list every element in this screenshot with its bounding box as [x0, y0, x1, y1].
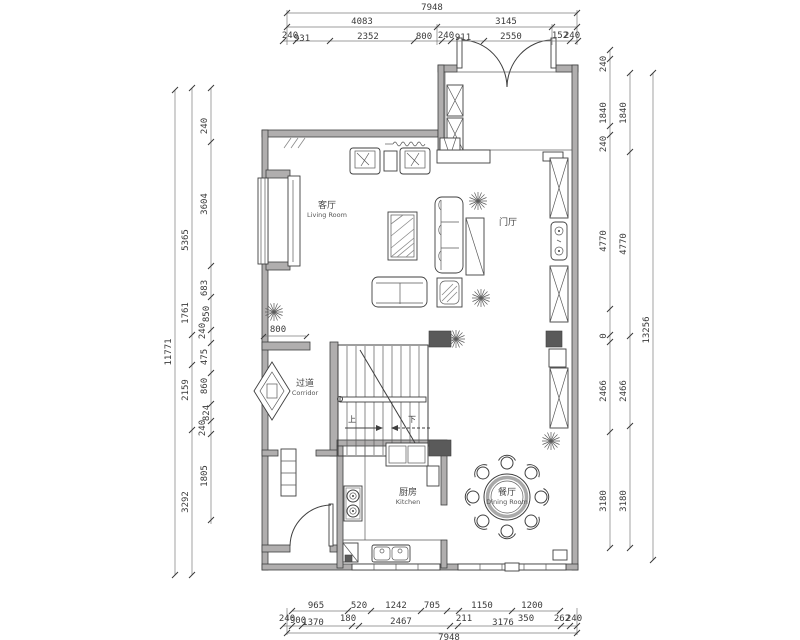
- dim-label: 7948: [421, 3, 443, 13]
- dim-label: 2352: [357, 32, 379, 42]
- dim-label: 1242: [385, 601, 407, 611]
- dim-label: 2467: [390, 617, 412, 627]
- kitchen-door: [290, 504, 333, 546]
- outlet-box: [553, 550, 567, 560]
- dim-label: 3180: [599, 490, 609, 512]
- dim-label: 211: [456, 614, 472, 624]
- dim-label: 5365: [181, 229, 191, 251]
- dim-label: 240: [599, 136, 609, 152]
- dim-label: 240: [599, 56, 609, 72]
- dimensions-left: 11771 5365 1761 2159 3292 240 3604 683 8…: [164, 85, 214, 578]
- dim-label: 350: [518, 614, 534, 624]
- corner-table: [437, 278, 462, 307]
- dim-label: 850: [202, 306, 212, 322]
- living-room-label-en: Living Room: [307, 211, 347, 219]
- kitchen-label-en: Kitchen: [396, 498, 420, 506]
- plant-icon: [472, 289, 490, 307]
- kitchen-fixtures: [343, 443, 567, 562]
- curtain-icon: [393, 142, 425, 146]
- armchair: [350, 148, 380, 174]
- dimensions-bottom: 965 520 1242 705 1150 1200 240 900 1370 …: [279, 601, 582, 640]
- stove: [344, 486, 362, 521]
- dim-label: 4083: [351, 17, 373, 27]
- dim-label: 180: [340, 614, 356, 624]
- corridor-label-zh: 过道: [296, 377, 314, 389]
- dim-label: 240: [200, 118, 210, 134]
- stair-up-label: 上: [348, 415, 356, 424]
- dim-label: 2550: [500, 32, 522, 42]
- dim-label: 800: [270, 325, 286, 335]
- dim-label: 11771: [164, 338, 174, 365]
- dim-label: 1370: [302, 618, 324, 628]
- wardrobe-cabinet: [550, 266, 568, 322]
- dim-label: 1840: [599, 102, 609, 124]
- dim-label: 800: [416, 32, 432, 42]
- living-furniture: [350, 138, 490, 307]
- dining-label-zh: 餐厅: [498, 486, 516, 498]
- dim-label: 3292: [181, 491, 191, 513]
- sofa-two-seat: [372, 277, 427, 307]
- tv-wall-unit: [288, 176, 300, 266]
- dim-label: 824: [202, 405, 212, 421]
- exterior-walls: [262, 65, 578, 570]
- dimensions-top: 7948 4083 3145 240 931 2352 800 240 911 …: [280, 3, 581, 45]
- foyer-label-zh: 门厅: [499, 216, 517, 228]
- stair-up-arrow: 上: [345, 415, 383, 431]
- dim-label: 3604: [200, 193, 210, 215]
- dim-label: 931: [294, 34, 310, 44]
- dim-label: 475: [200, 349, 210, 365]
- dim-label: 7948: [438, 633, 460, 640]
- dim-label: 1761: [181, 302, 191, 324]
- dim-label: 240: [566, 614, 582, 624]
- floor-plan-canvas: 800 上 下: [0, 0, 800, 640]
- dim-label: 2466: [599, 380, 609, 402]
- corridor-art-diamond: [254, 362, 290, 420]
- dim-label: 3180: [619, 490, 629, 512]
- right-wall-cabinets: [549, 158, 568, 428]
- stairs: 上 下: [338, 345, 431, 456]
- sink: [372, 545, 410, 562]
- dim-label: 240: [564, 31, 580, 41]
- plant-icon: [469, 192, 487, 210]
- side-screen: [466, 218, 484, 275]
- dim-label: 0: [599, 333, 609, 338]
- coffee-table: [388, 212, 417, 260]
- dim-label: 1150: [471, 601, 493, 611]
- entry-porch: [445, 72, 572, 150]
- plant-icon: [265, 303, 283, 321]
- wall-hatch-marks: [284, 138, 305, 148]
- dimensions-right: 240 1840 240 4770 0 2466 3180 1840 4770 …: [599, 47, 656, 563]
- kitchen-label-zh: 厨房: [399, 486, 417, 498]
- dim-label: 520: [351, 601, 367, 611]
- dim-label: 911: [455, 33, 471, 43]
- dim-label: 1200: [521, 601, 543, 611]
- tv-cabinet: [437, 138, 490, 163]
- wardrobe-cabinet: [550, 368, 568, 428]
- left-lower-window: [281, 449, 296, 496]
- small-cabinet: [549, 349, 566, 367]
- dim-label: 3145: [495, 17, 517, 27]
- dim-label: 4770: [599, 230, 609, 252]
- wardrobe-cabinet: [550, 158, 568, 218]
- dim-label: 2466: [619, 380, 629, 402]
- corner-cabinet: [343, 543, 358, 562]
- sofa-three-seat: [435, 197, 463, 273]
- bay-window: [258, 178, 268, 264]
- dim-label: 13256: [642, 316, 652, 343]
- armchair: [400, 148, 430, 174]
- stair-down-arrow: 下: [391, 415, 430, 431]
- plant-icon: [542, 432, 560, 450]
- stair-down-label: 下: [408, 415, 416, 424]
- corridor-label-en: Corridor: [292, 389, 319, 397]
- side-table: [384, 151, 397, 171]
- dining-window: [458, 563, 566, 571]
- dim-label: 705: [424, 601, 440, 611]
- living-room-label-zh: 客厅: [318, 199, 336, 211]
- dim-label: 3176: [492, 618, 514, 628]
- plant-icon: [447, 330, 465, 348]
- dim-label: 240: [198, 323, 208, 339]
- dim-label: 1840: [619, 102, 629, 124]
- entrance-double-door: [457, 38, 556, 87]
- dining-label-en: Dining Room: [486, 498, 528, 506]
- dim-label: 240: [438, 31, 454, 41]
- dim-label: 860: [200, 378, 210, 394]
- dim-label: 965: [308, 601, 324, 611]
- dim-label: 4770: [619, 233, 629, 255]
- dim-label: 240: [198, 420, 208, 436]
- dim-label: 1805: [200, 465, 210, 487]
- kitchen-window: [352, 564, 440, 570]
- dim-label: 2159: [181, 379, 191, 401]
- dim-label: 683: [200, 280, 210, 296]
- console-with-lamps: [551, 222, 567, 260]
